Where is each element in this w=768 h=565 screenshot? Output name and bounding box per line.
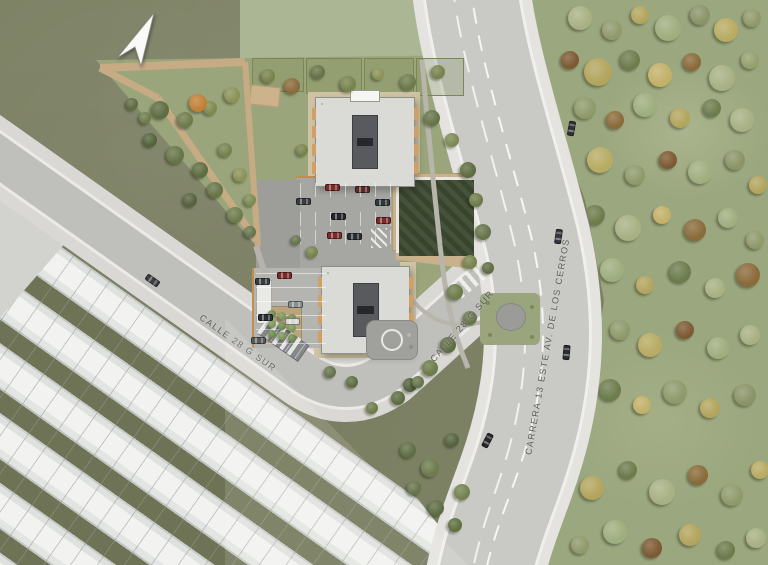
car-icon [376, 217, 391, 224]
car-icon [331, 213, 346, 220]
car-icon [375, 199, 390, 206]
car-icon [327, 232, 342, 239]
car-icon [277, 272, 292, 279]
site-plan-canvas: CALLE 28 G SUR CALLE 28 G SUR CARRERA 13… [0, 0, 768, 565]
car-icon [251, 337, 266, 344]
car-icon [325, 184, 340, 191]
car-icon [255, 278, 270, 285]
car-icon [258, 314, 273, 321]
north-arrow-icon [108, 6, 164, 72]
car-icon [347, 233, 362, 240]
car-icon [355, 186, 370, 193]
parked-cars [0, 0, 768, 565]
car-icon [296, 198, 311, 205]
car-icon [288, 301, 303, 308]
car-icon [285, 318, 300, 325]
